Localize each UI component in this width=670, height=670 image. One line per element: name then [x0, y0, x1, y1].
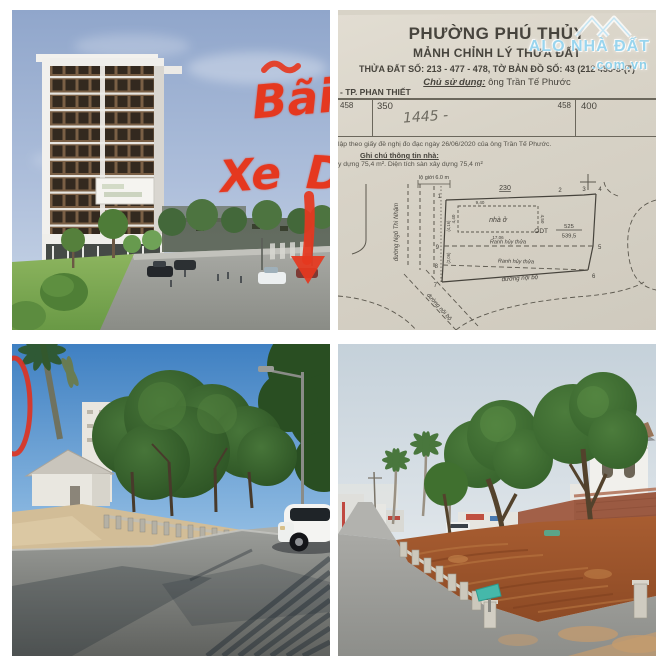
svg-text:9: 9 [436, 245, 440, 251]
city-line: - TP. PHAN THIẾT [340, 87, 411, 97]
photo-building-render: Bãi Xe D [12, 10, 330, 330]
red-annotation-strokes [12, 10, 330, 330]
svg-text:Ranh hủy thửa: Ranh hủy thửa [490, 239, 526, 246]
diagonal-road-label: đường nội bộ [425, 293, 453, 323]
cadastral-document: PHƯỜNG PHÚ THỦY MẢNH CHỈNH LÝ THỬA ĐẤT T… [338, 10, 656, 330]
svg-text:4,50: 4,50 [540, 215, 545, 224]
parcel-line: THỬA ĐẤT SỐ: 213 - 477 - 478, TỜ BẢN ĐỒ … [338, 64, 656, 74]
arrow-shaft [307, 196, 310, 260]
listing-photo-collage: Bãi Xe D PHƯỜNG PHÚ THỦY MẢNH CHỈNH LÝ T… [0, 0, 670, 670]
grid-cell-400: 400 [576, 100, 656, 136]
street-scene [12, 344, 330, 656]
frontage-dimension: 230 [499, 185, 511, 192]
grid-value-350: 350 [377, 101, 393, 112]
svg-text:4: 4 [598, 187, 602, 193]
svg-text:7: 7 [434, 283, 438, 289]
floor-area-note: y dựng 75,4 m². Diện tích sàn xây dựng 7… [338, 161, 483, 168]
zoning-fraction: ODT 525 539,5 [534, 224, 582, 240]
owner-name: ông Trần Tế Phước [485, 77, 570, 88]
house-note-heading: Ghi chú thông tin nhà: [360, 151, 439, 160]
tilde-stroke [264, 64, 298, 71]
road-curves [338, 182, 656, 330]
svg-text:6: 6 [592, 274, 596, 280]
vacant-lot-scene [338, 344, 656, 656]
cadastral-drawing: đường Ngô Thì Nhậm lộ giới 6.0 m 1 2 3 4… [338, 170, 656, 330]
ward-title: PHƯỜNG PHÚ THỦY [338, 24, 656, 44]
svg-text:9,40: 9,40 [476, 200, 485, 205]
grid-cell-458-right: 458 [558, 101, 571, 110]
left-dim-1: (4,16) [446, 220, 451, 232]
svg-text:3: 3 [582, 187, 586, 193]
cancelled-boundaries: Ranh hủy thửa Ranh hủy thửa [443, 239, 593, 271]
coordinate-grid-row: 458 350 1445 - 458 400 [338, 98, 656, 137]
house-outline: nhà ở 9,40 17,06 4,50 4,40 [451, 200, 545, 240]
sheet-title: MẢNH CHỈNH LÝ THỬA ĐẤT [338, 46, 656, 60]
document-header: PHƯỜNG PHÚ THỦY MẢNH CHỈNH LÝ THỬA ĐẤT T… [338, 24, 656, 88]
survey-note: lập theo giấy đề nghị đo đạc ngày 26/06/… [338, 141, 551, 148]
grid-cell-458-left: 458 [338, 100, 373, 136]
photo-street-view [12, 344, 330, 656]
svg-text:5: 5 [598, 245, 602, 251]
house-label: nhà ở [489, 216, 508, 224]
svg-text:525: 525 [564, 224, 574, 230]
grid-cell-350: 350 1445 - 458 [373, 100, 576, 136]
svg-text:ODT: ODT [534, 228, 548, 235]
svg-text:8: 8 [435, 264, 439, 270]
svg-text:2: 2 [558, 188, 562, 194]
photo-vacant-lot [338, 344, 656, 656]
owner-label: Chủ sử dụng: [423, 77, 485, 88]
svg-text:539,5: 539,5 [562, 234, 577, 240]
left-dim-2: (2,06) [446, 252, 451, 264]
vertex-labels: 1 2 3 4 5 6 7 8 9 [434, 187, 603, 289]
svg-text:Ranh hủy thửa: Ranh hủy thửa [498, 258, 534, 266]
street-name-label: đường Ngô Thì Nhậm [394, 203, 400, 261]
internal-road-label: đường nội bộ [501, 274, 539, 284]
setback-label: lộ giới 6.0 m [419, 175, 450, 181]
svg-text:4,40: 4,40 [451, 214, 456, 223]
handwritten-number: 1445 - [402, 107, 448, 126]
arrow-head [291, 256, 325, 284]
